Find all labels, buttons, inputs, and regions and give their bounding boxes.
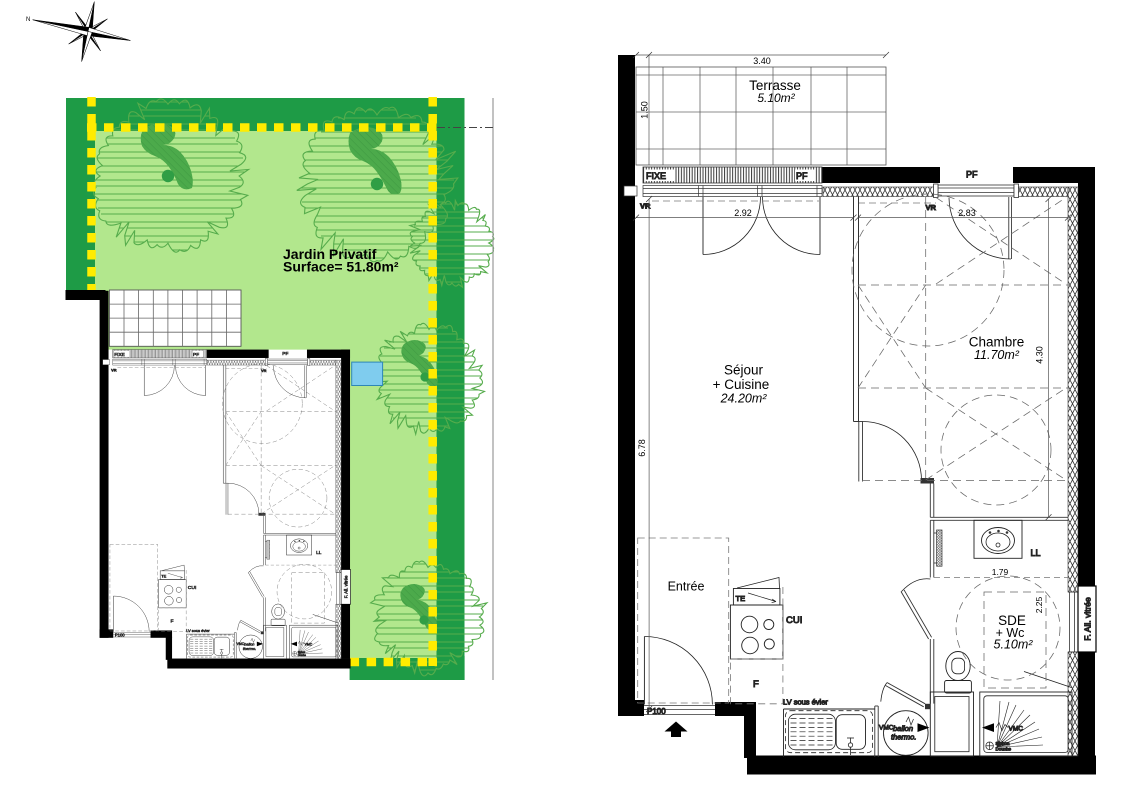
svg-text:2.25: 2.25 (1034, 596, 1044, 613)
svg-text:1.50: 1.50 (640, 101, 650, 119)
svg-text:FIXE: FIXE (646, 171, 666, 181)
svg-text:4.30: 4.30 (1035, 346, 1045, 364)
svg-text:LL: LL (1031, 548, 1041, 558)
svg-text:PF: PF (966, 170, 978, 180)
svg-text:LV sous évier: LV sous évier (783, 698, 828, 707)
svg-text:Entrée: Entrée (668, 580, 705, 594)
svg-text:11.70m²: 11.70m² (974, 348, 1020, 362)
svg-text:Siphon: Siphon (996, 741, 1011, 746)
svg-text:2.92: 2.92 (734, 208, 752, 218)
svg-text:5.10m²: 5.10m² (757, 91, 795, 105)
svg-text:2.83: 2.83 (958, 208, 976, 218)
svg-text:24.20m²: 24.20m² (720, 392, 768, 406)
svg-text:thermo.: thermo. (891, 733, 916, 742)
svg-text:+ Cuisine: + Cuisine (713, 377, 770, 392)
svg-text:Séjour: Séjour (724, 363, 764, 378)
svg-text:1.79: 1.79 (992, 567, 1009, 577)
svg-text:3.40: 3.40 (753, 56, 771, 66)
svg-text:F: F (753, 679, 759, 690)
svg-text:PF: PF (796, 171, 808, 181)
svg-text:Surface= 51.80m²: Surface= 51.80m² (283, 259, 399, 275)
svg-text:CUI: CUI (786, 615, 802, 626)
svg-text:F. All. vitrée: F. All. vitrée (1083, 597, 1093, 641)
svg-text:6.78: 6.78 (637, 439, 647, 457)
svg-text:5.10m²: 5.10m² (994, 638, 1034, 652)
svg-text:N: N (26, 17, 30, 23)
svg-text:VR: VR (926, 203, 937, 212)
svg-text:TE: TE (736, 594, 746, 603)
svg-text:Douche: Douche (996, 747, 1012, 752)
svg-text:VMC: VMC (1009, 726, 1024, 733)
svg-text:VMC: VMC (879, 725, 894, 732)
